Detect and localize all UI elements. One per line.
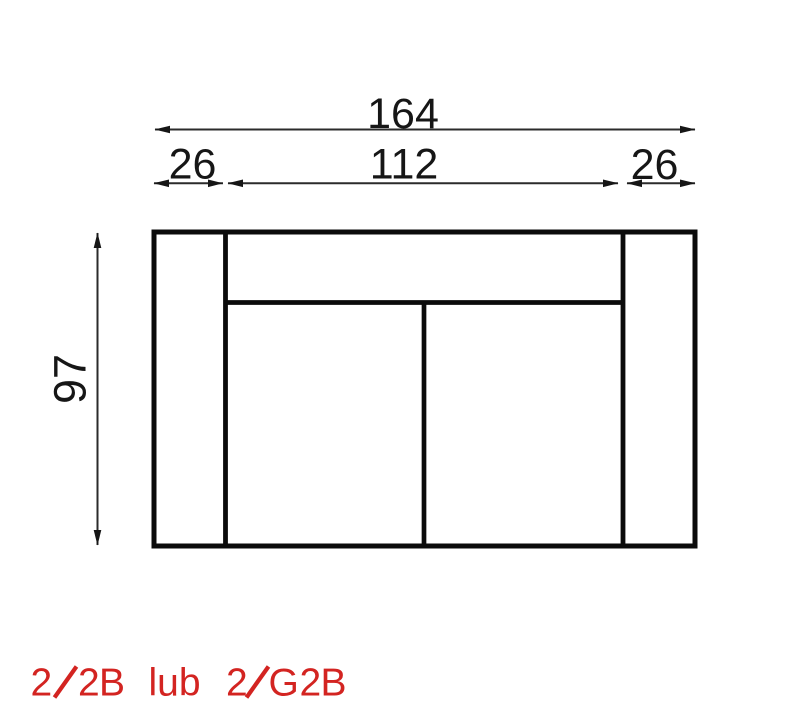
svg-text:112: 112 (370, 141, 439, 189)
svg-text:lub: lub (149, 662, 201, 705)
svg-text:B: B (99, 662, 125, 705)
svg-text:2: 2 (226, 662, 248, 705)
svg-text:26: 26 (631, 141, 679, 189)
svg-text:97: 97 (45, 354, 96, 404)
svg-text:2: 2 (31, 662, 53, 705)
svg-text:26: 26 (169, 141, 217, 189)
svg-text:B: B (321, 662, 347, 705)
svg-text:2: 2 (300, 662, 322, 705)
svg-text:G: G (269, 662, 299, 705)
svg-text:164: 164 (367, 90, 439, 138)
svg-text:2: 2 (78, 662, 100, 705)
